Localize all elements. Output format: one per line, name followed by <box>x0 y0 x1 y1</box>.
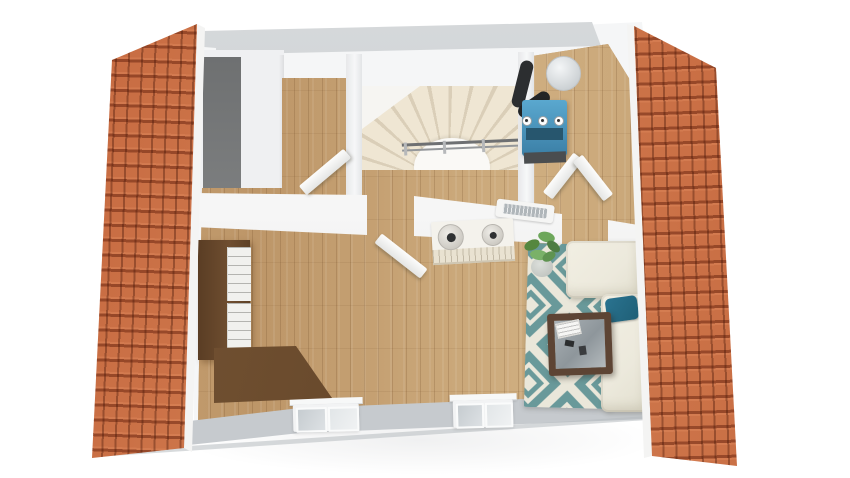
staircase <box>358 86 520 170</box>
window-pane <box>328 406 360 432</box>
valve <box>538 116 548 126</box>
window-pane <box>485 402 514 428</box>
floor-plan-render <box>0 0 850 478</box>
basin-drain <box>490 232 497 239</box>
boiler-base <box>524 151 566 163</box>
coffee-table <box>547 312 613 376</box>
basin-drain <box>447 233 456 242</box>
remote-control <box>565 340 575 347</box>
boiler-station <box>508 52 580 164</box>
bedroom-accent-wall <box>203 57 241 205</box>
valve <box>554 116 564 126</box>
paper-stack <box>555 319 582 339</box>
railing-post <box>443 141 447 154</box>
sofa-chaise <box>566 241 642 298</box>
window-pane <box>296 407 328 433</box>
railing-post <box>482 139 486 152</box>
stairwell-west-wall <box>346 54 362 198</box>
bookshelf-shelves <box>227 247 251 301</box>
bookshelf <box>198 240 250 360</box>
window-right <box>450 393 518 429</box>
remote-control <box>579 345 587 355</box>
window-left <box>290 397 364 433</box>
expansion-tank <box>546 56 581 91</box>
valve <box>522 116 532 126</box>
window-pane <box>456 403 485 429</box>
window-frame <box>453 399 514 428</box>
potted-plant <box>518 228 566 280</box>
window-frame <box>293 403 360 432</box>
railing-post <box>404 142 408 155</box>
vanity-cabinet <box>431 216 515 266</box>
boiler-panel <box>526 128 563 140</box>
